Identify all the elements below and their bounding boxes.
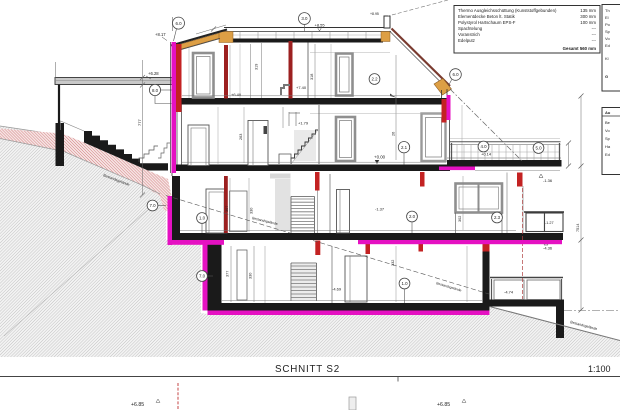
svg-text:2.2: 2.2 [371,77,378,82]
svg-text:Ed: Ed [605,43,610,48]
svg-text:Polystyrol Hartschaum EPS-F: Polystyrol Hartschaum EPS-F [458,20,516,25]
svg-text:Po: Po [605,22,611,27]
svg-text:Be: Be [605,120,611,125]
svg-text:302: 302 [458,216,462,222]
svg-text:Ed: Ed [605,152,610,157]
svg-text:Ha: Ha [605,144,611,149]
svg-text:300 mm: 300 mm [580,14,596,19]
svg-text:Thermo Ausgleichsschüttung (Ku: Thermo Ausgleichsschüttung (Kunststoffge… [458,8,557,13]
svg-text:-4.74: -4.74 [504,290,514,295]
svg-text:263: 263 [239,134,243,140]
svg-text:6.0: 6.0 [175,21,182,26]
svg-text:3.0: 3.0 [301,16,308,21]
svg-text:377: 377 [226,271,230,277]
svg-text:-1.27: -1.27 [545,221,554,225]
svg-text:+8.17: +8.17 [155,32,166,37]
svg-text:6.0: 6.0 [452,72,459,77]
svg-text:2.3: 2.3 [494,215,501,220]
svg-text:+0.00: +0.00 [374,155,386,160]
svg-text:7.0: 7.0 [199,274,206,279]
svg-text:Au: Au [605,110,611,115]
svg-text:-1.36: -1.36 [543,178,553,183]
svg-text:Vo: Vo [605,128,610,133]
svg-text:+6.85: +6.85 [437,402,450,408]
svg-text:Vo: Vo [605,36,610,41]
svg-text:100 mm: 100 mm [580,20,596,25]
svg-text:7514: 7514 [576,224,580,232]
svg-text:Th: Th [605,8,610,13]
svg-text:5.0: 5.0 [535,146,542,151]
svg-text:Kl: Kl [605,56,609,61]
svg-text:+6.28: +6.28 [148,71,159,76]
svg-text:---: --- [592,32,597,37]
svg-text:Sp: Sp [605,136,611,141]
svg-text:135 mm: 135 mm [580,8,596,13]
svg-text:8.0: 8.0 [152,88,159,93]
svg-text:+1.79: +1.79 [298,121,309,126]
svg-text:332: 332 [391,260,395,266]
svg-text:7.0: 7.0 [149,203,156,208]
svg-text:+8.95: +8.95 [370,12,379,16]
svg-text:Edelputz: Edelputz [458,38,475,43]
svg-text:-4.36: -4.36 [543,246,553,251]
svg-text:SCHNITT S2: SCHNITT S2 [275,364,340,375]
svg-text:319: 319 [255,64,259,70]
svg-text:-4.69: -4.69 [332,287,342,292]
svg-text:+6.40: +6.40 [231,92,242,97]
svg-text:330: 330 [249,273,253,279]
svg-text:+6.85: +6.85 [131,402,144,408]
svg-text:330: 330 [250,208,254,214]
svg-text:1:100: 1:100 [588,364,611,374]
svg-text:2.0: 2.0 [409,214,416,219]
svg-text:1.0: 1.0 [401,281,408,286]
svg-text:Elementdecke Beton lt. Statik: Elementdecke Beton lt. Statik [458,14,516,19]
svg-text:4.0: 4.0 [480,144,487,149]
svg-text:El: El [605,15,609,20]
svg-text:307: 307 [225,206,229,212]
svg-text:+8.55: +8.55 [315,23,326,28]
svg-text:1.0: 1.0 [199,216,206,221]
svg-text:Voranstrich: Voranstrich [458,32,480,37]
svg-text:Sp: Sp [605,29,611,34]
svg-text:26: 26 [391,132,395,136]
svg-text:G: G [605,74,608,79]
svg-text:Gesamt 560 mm: Gesamt 560 mm [563,46,596,51]
svg-text:---: --- [592,38,597,43]
svg-text:-1.37: -1.37 [375,207,385,212]
svg-text:+7.40: +7.40 [296,85,307,90]
svg-text:2.1: 2.1 [401,145,408,150]
svg-text:---: --- [592,26,597,31]
svg-text:318: 318 [310,74,314,80]
svg-text:777: 777 [137,119,142,126]
svg-text:+0.14: +0.14 [481,152,492,157]
svg-text:Spachtelung: Spachtelung [458,26,483,31]
